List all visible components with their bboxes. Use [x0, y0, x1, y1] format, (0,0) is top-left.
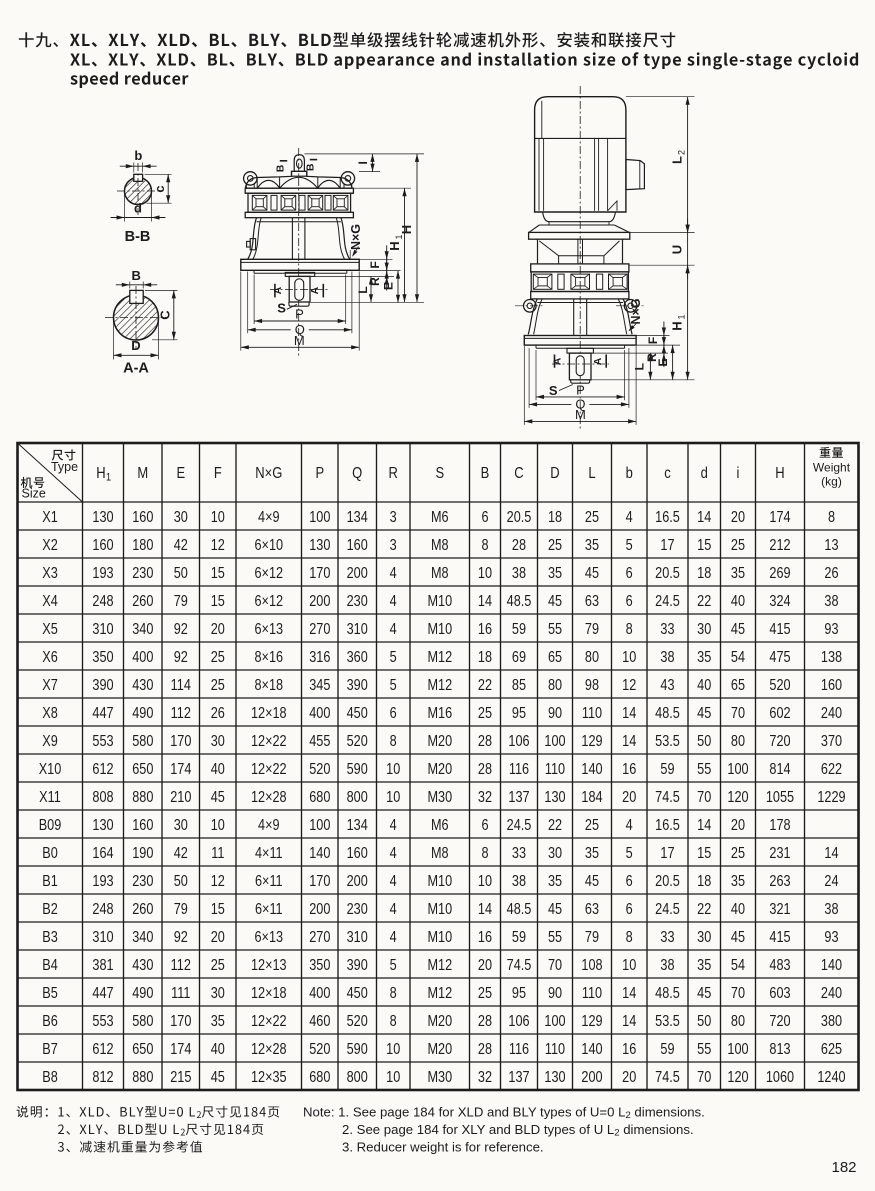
svg-text:270: 270 — [309, 620, 330, 637]
svg-text:63: 63 — [585, 900, 599, 917]
svg-text:190: 190 — [132, 844, 153, 861]
svg-text:48.5: 48.5 — [507, 592, 532, 609]
svg-text:4×9: 4×9 — [258, 508, 280, 525]
svg-text:N×G: N×G — [349, 224, 363, 250]
svg-text:35: 35 — [211, 1012, 225, 1029]
svg-text:520: 520 — [769, 676, 790, 693]
svg-text:4: 4 — [390, 816, 397, 833]
svg-text:35: 35 — [731, 872, 745, 889]
svg-text:12×28: 12×28 — [251, 788, 287, 805]
svg-text:15: 15 — [211, 564, 225, 581]
svg-text:18: 18 — [478, 648, 492, 665]
svg-text:310: 310 — [92, 620, 113, 637]
svg-text:30: 30 — [697, 928, 711, 945]
svg-text:B1: B1 — [42, 872, 58, 889]
svg-text:b: b — [626, 465, 633, 482]
svg-text:140: 140 — [821, 956, 842, 973]
svg-text:X4: X4 — [42, 592, 58, 609]
svg-text:720: 720 — [769, 732, 790, 749]
svg-text:612: 612 — [92, 760, 113, 777]
svg-text:Weight: Weight — [813, 461, 851, 475]
svg-text:1: 1 — [106, 472, 111, 484]
svg-text:270: 270 — [309, 928, 330, 945]
svg-text:80: 80 — [731, 1012, 745, 1029]
svg-text:622: 622 — [821, 760, 842, 777]
svg-text:65: 65 — [548, 648, 562, 665]
svg-text:15: 15 — [697, 844, 711, 861]
svg-text:P: P — [315, 465, 324, 482]
svg-text:160: 160 — [92, 536, 113, 553]
svg-text:580: 580 — [132, 1012, 153, 1029]
svg-text:248: 248 — [92, 592, 113, 609]
svg-text:160: 160 — [132, 816, 153, 833]
svg-text:4: 4 — [390, 928, 397, 945]
svg-text:8×18: 8×18 — [255, 676, 284, 693]
svg-text:B2: B2 — [42, 900, 58, 917]
svg-text:100: 100 — [544, 732, 565, 749]
svg-text:15: 15 — [211, 592, 225, 609]
svg-text:455: 455 — [309, 732, 330, 749]
svg-text:55: 55 — [697, 1040, 711, 1057]
svg-text:170: 170 — [309, 872, 330, 889]
svg-text:230: 230 — [347, 900, 368, 917]
svg-text:12×35: 12×35 — [251, 1068, 287, 1085]
svg-text:H: H — [775, 465, 784, 482]
svg-text:74.5: 74.5 — [507, 956, 532, 973]
svg-text:X3: X3 — [42, 564, 58, 581]
svg-text:H: H — [96, 465, 105, 482]
svg-text:L: L — [588, 465, 595, 482]
svg-text:170: 170 — [309, 564, 330, 581]
svg-text:S: S — [549, 383, 558, 398]
svg-text:800: 800 — [347, 788, 368, 805]
svg-text:25: 25 — [211, 648, 225, 665]
svg-text:X2: X2 — [42, 536, 58, 553]
svg-text:N×G: N×G — [629, 298, 643, 324]
svg-text:215: 215 — [170, 1068, 191, 1085]
svg-text:210: 210 — [170, 788, 191, 805]
svg-text:814: 814 — [769, 760, 790, 777]
svg-text:59: 59 — [512, 928, 526, 945]
svg-text:42: 42 — [174, 844, 188, 861]
svg-text:1229: 1229 — [817, 788, 845, 805]
svg-text:M8: M8 — [431, 844, 449, 861]
svg-text:230: 230 — [347, 592, 368, 609]
svg-text:193: 193 — [92, 872, 113, 889]
svg-text:350: 350 — [309, 956, 330, 973]
svg-text:108: 108 — [581, 956, 602, 973]
svg-text:5: 5 — [626, 844, 633, 861]
svg-text:42: 42 — [174, 536, 188, 553]
svg-text:74.5: 74.5 — [655, 1068, 680, 1085]
svg-text:450: 450 — [347, 704, 368, 721]
svg-text:8: 8 — [626, 620, 633, 637]
svg-text:447: 447 — [92, 704, 113, 721]
svg-text:28: 28 — [478, 1012, 492, 1029]
svg-text:260: 260 — [132, 592, 153, 609]
svg-text:12×28: 12×28 — [251, 1040, 287, 1057]
svg-text:400: 400 — [309, 704, 330, 721]
svg-text:5: 5 — [626, 536, 633, 553]
svg-text:C: C — [157, 310, 172, 320]
svg-text:25: 25 — [731, 844, 745, 861]
svg-text:112: 112 — [171, 956, 191, 973]
svg-text:28: 28 — [478, 760, 492, 777]
svg-text:D: D — [131, 338, 140, 353]
svg-text:79: 79 — [174, 900, 188, 917]
svg-text:B6: B6 — [42, 1012, 58, 1029]
svg-text:35: 35 — [697, 648, 711, 665]
svg-text:4: 4 — [390, 900, 397, 917]
svg-text:16: 16 — [478, 620, 492, 637]
svg-text:c: c — [152, 185, 167, 192]
svg-text:d: d — [134, 201, 142, 216]
svg-text:15: 15 — [211, 900, 225, 917]
svg-text:134: 134 — [347, 816, 368, 833]
svg-text:680: 680 — [309, 788, 330, 805]
svg-text:B5: B5 — [42, 984, 58, 1001]
svg-text:35: 35 — [697, 956, 711, 973]
svg-text:130: 130 — [92, 508, 113, 525]
svg-text:79: 79 — [585, 928, 599, 945]
svg-text:110: 110 — [545, 760, 565, 777]
svg-text:14: 14 — [622, 984, 636, 1001]
svg-text:590: 590 — [347, 1040, 368, 1057]
svg-text:14: 14 — [697, 816, 711, 833]
svg-text:M20: M20 — [427, 1012, 452, 1029]
svg-text:E: E — [176, 465, 185, 482]
svg-text:8: 8 — [390, 1012, 397, 1029]
svg-text:612: 612 — [92, 1040, 113, 1057]
svg-text:110: 110 — [545, 1040, 565, 1057]
svg-text:I: I — [356, 161, 370, 164]
svg-text:M: M — [137, 465, 148, 482]
svg-text:S: S — [435, 465, 444, 482]
svg-text:450: 450 — [347, 984, 368, 1001]
svg-text:4: 4 — [390, 844, 397, 861]
svg-text:M10: M10 — [427, 928, 452, 945]
svg-text:M12: M12 — [427, 984, 452, 1001]
svg-text:79: 79 — [585, 620, 599, 637]
svg-text:40: 40 — [211, 760, 225, 777]
svg-text:50: 50 — [174, 872, 188, 889]
svg-text:12×13: 12×13 — [251, 956, 287, 973]
svg-text:263: 263 — [769, 872, 790, 889]
svg-text:10: 10 — [386, 1068, 400, 1085]
svg-text:12×22: 12×22 — [251, 760, 287, 777]
svg-text:350: 350 — [92, 648, 113, 665]
svg-text:345: 345 — [309, 676, 330, 693]
svg-text:5: 5 — [390, 648, 397, 665]
svg-text:114: 114 — [171, 676, 191, 693]
svg-text:20: 20 — [731, 816, 745, 833]
svg-text:35: 35 — [548, 564, 562, 581]
svg-text:32: 32 — [478, 1068, 492, 1085]
svg-text:A: A — [552, 357, 564, 365]
svg-text:16: 16 — [622, 760, 636, 777]
svg-text:12×22: 12×22 — [251, 1012, 287, 1029]
svg-text:26: 26 — [211, 704, 225, 721]
svg-text:625: 625 — [821, 1040, 842, 1057]
svg-text:38: 38 — [660, 956, 674, 973]
svg-text:180: 180 — [132, 536, 153, 553]
svg-text:Type: Type — [51, 460, 78, 474]
svg-text:35: 35 — [585, 536, 599, 553]
svg-text:129: 129 — [581, 1012, 602, 1029]
svg-text:30: 30 — [697, 620, 711, 637]
svg-text:200: 200 — [581, 1068, 602, 1085]
svg-text:92: 92 — [174, 648, 188, 665]
svg-text:8: 8 — [390, 984, 397, 1001]
svg-text:18: 18 — [697, 872, 711, 889]
svg-text:55: 55 — [548, 620, 562, 637]
svg-text:40: 40 — [211, 1040, 225, 1057]
svg-text:B: B — [304, 163, 316, 171]
svg-text:B-B: B-B — [125, 229, 151, 245]
svg-text:430: 430 — [132, 956, 153, 973]
svg-text:D: D — [550, 465, 559, 482]
svg-text:35: 35 — [548, 872, 562, 889]
svg-text:85: 85 — [512, 676, 526, 693]
svg-text:130: 130 — [544, 788, 565, 805]
svg-text:25: 25 — [548, 536, 562, 553]
svg-text:14: 14 — [697, 508, 711, 525]
svg-text:45: 45 — [211, 1068, 225, 1085]
svg-text:140: 140 — [581, 1040, 602, 1057]
svg-text:Q: Q — [352, 465, 362, 482]
svg-text:20: 20 — [731, 508, 745, 525]
svg-text:93: 93 — [824, 620, 838, 637]
svg-text:160: 160 — [132, 508, 153, 525]
svg-text:54: 54 — [731, 956, 745, 973]
svg-text:63: 63 — [585, 592, 599, 609]
svg-text:12: 12 — [211, 536, 225, 553]
svg-text:324: 324 — [769, 592, 790, 609]
svg-text:880: 880 — [132, 1068, 153, 1085]
svg-text:6×12: 6×12 — [255, 564, 284, 581]
svg-text:50: 50 — [697, 732, 711, 749]
svg-text:6: 6 — [481, 508, 488, 525]
svg-text:B0: B0 — [42, 844, 58, 861]
svg-text:N×G: N×G — [255, 465, 282, 482]
svg-text:3. Reducer weight is for refer: 3. Reducer weight is for reference. — [342, 1140, 544, 1155]
svg-text:25: 25 — [585, 508, 599, 525]
svg-text:20: 20 — [622, 788, 636, 805]
svg-text:134: 134 — [347, 508, 368, 525]
svg-text:447: 447 — [92, 984, 113, 1001]
svg-text:M30: M30 — [427, 788, 452, 805]
svg-text:182: 182 — [831, 1159, 856, 1176]
svg-text:380: 380 — [821, 1012, 842, 1029]
svg-text:M8: M8 — [431, 564, 449, 581]
svg-text:130: 130 — [92, 816, 113, 833]
svg-text:553: 553 — [92, 1012, 113, 1029]
svg-text:6×11: 6×11 — [255, 872, 283, 889]
svg-text:Note: 1. See page 184 for XLD: Note: 1. See page 184 for XLD and BLY ty… — [303, 1105, 705, 1122]
svg-text:70: 70 — [548, 956, 562, 973]
svg-text:650: 650 — [132, 1040, 153, 1057]
svg-text:M10: M10 — [427, 620, 452, 637]
svg-text:22: 22 — [548, 816, 562, 833]
svg-text:137: 137 — [508, 1068, 529, 1085]
svg-text:25: 25 — [585, 816, 599, 833]
svg-text:1: 1 — [677, 314, 687, 319]
svg-text:381: 381 — [92, 956, 113, 973]
svg-text:20: 20 — [211, 620, 225, 637]
svg-text:11: 11 — [211, 844, 224, 861]
svg-text:25: 25 — [731, 536, 745, 553]
svg-text:R: R — [389, 465, 398, 482]
svg-text:M20: M20 — [427, 760, 452, 777]
svg-text:45: 45 — [548, 900, 562, 917]
svg-text:4: 4 — [626, 816, 633, 833]
svg-text:L: L — [670, 156, 685, 164]
svg-text:1060: 1060 — [766, 1068, 794, 1085]
svg-text:M6: M6 — [431, 816, 449, 833]
svg-text:70: 70 — [731, 704, 745, 721]
svg-text:70: 70 — [731, 984, 745, 1001]
svg-text:390: 390 — [92, 676, 113, 693]
svg-text:160: 160 — [347, 844, 368, 861]
svg-text:50: 50 — [697, 1012, 711, 1029]
svg-text:1: 1 — [394, 234, 404, 239]
svg-text:3: 3 — [390, 508, 397, 525]
svg-text:2: 2 — [677, 150, 687, 155]
svg-text:106: 106 — [508, 1012, 529, 1029]
svg-text:193: 193 — [92, 564, 113, 581]
svg-text:70: 70 — [697, 788, 711, 805]
svg-text:10: 10 — [622, 956, 636, 973]
svg-text:M20: M20 — [427, 732, 452, 749]
svg-text:5: 5 — [390, 956, 397, 973]
svg-text:M6: M6 — [431, 508, 449, 525]
svg-text:24: 24 — [824, 872, 838, 889]
svg-text:X9: X9 — [42, 732, 58, 749]
svg-text:L: L — [633, 363, 647, 370]
svg-text:310: 310 — [92, 928, 113, 945]
svg-text:65: 65 — [731, 676, 745, 693]
svg-text:B7: B7 — [42, 1040, 58, 1057]
svg-text:H: H — [670, 321, 685, 330]
svg-text:483: 483 — [769, 956, 790, 973]
svg-text:8: 8 — [481, 844, 488, 861]
svg-text:M: M — [575, 407, 586, 422]
svg-text:B: B — [274, 164, 286, 172]
svg-text:603: 603 — [769, 984, 790, 1001]
svg-text:30: 30 — [174, 816, 188, 833]
svg-text:16: 16 — [478, 928, 492, 945]
svg-text:12: 12 — [622, 676, 636, 693]
svg-text:A-A: A-A — [123, 361, 149, 377]
svg-text:92: 92 — [174, 928, 188, 945]
svg-text:45: 45 — [548, 592, 562, 609]
svg-text:70: 70 — [697, 1068, 711, 1085]
svg-text:120: 120 — [727, 788, 748, 805]
svg-text:M8: M8 — [431, 536, 449, 553]
svg-text:L: L — [356, 286, 370, 293]
svg-text:231: 231 — [769, 844, 790, 861]
svg-text:415: 415 — [769, 928, 790, 945]
svg-text:95: 95 — [512, 704, 526, 721]
svg-text:20: 20 — [622, 1068, 636, 1085]
svg-text:6: 6 — [626, 592, 633, 609]
svg-text:M16: M16 — [427, 704, 452, 721]
svg-text:200: 200 — [347, 872, 368, 889]
svg-text:310: 310 — [347, 620, 368, 637]
svg-text:160: 160 — [821, 676, 842, 693]
svg-text:8: 8 — [828, 508, 835, 525]
svg-text:33: 33 — [660, 620, 674, 637]
svg-text:808: 808 — [92, 788, 113, 805]
svg-text:4×9: 4×9 — [258, 816, 280, 833]
svg-text:12×22: 12×22 — [251, 732, 287, 749]
svg-text:45: 45 — [211, 788, 225, 805]
svg-text:475: 475 — [769, 648, 790, 665]
svg-text:M12: M12 — [427, 676, 452, 693]
svg-text:106: 106 — [508, 732, 529, 749]
svg-text:520: 520 — [309, 1040, 330, 1057]
svg-text:553: 553 — [92, 732, 113, 749]
svg-text:B4: B4 — [42, 956, 58, 973]
svg-text:53.5: 53.5 — [655, 1012, 680, 1029]
svg-text:12×18: 12×18 — [251, 984, 287, 1001]
svg-text:370: 370 — [821, 732, 842, 749]
svg-text:8: 8 — [481, 536, 488, 553]
svg-text:160: 160 — [347, 536, 368, 553]
svg-text:B8: B8 — [42, 1068, 58, 1085]
svg-text:33: 33 — [660, 928, 674, 945]
svg-text:98: 98 — [585, 676, 599, 693]
svg-text:812: 812 — [92, 1068, 113, 1085]
svg-text:38: 38 — [824, 900, 838, 917]
svg-text:110: 110 — [582, 984, 602, 1001]
svg-text:28: 28 — [478, 1040, 492, 1057]
svg-text:B: B — [481, 465, 490, 482]
svg-text:M12: M12 — [427, 648, 452, 665]
svg-text:45: 45 — [585, 564, 599, 581]
svg-text:174: 174 — [170, 760, 191, 777]
svg-text:10: 10 — [478, 872, 492, 889]
svg-text:17: 17 — [660, 844, 674, 861]
svg-text:40: 40 — [731, 900, 745, 917]
svg-text:6: 6 — [390, 704, 397, 721]
svg-text:12: 12 — [211, 872, 225, 889]
svg-text:38: 38 — [512, 564, 526, 581]
svg-text:38: 38 — [512, 872, 526, 889]
svg-text:520: 520 — [347, 732, 368, 749]
svg-text:170: 170 — [170, 732, 191, 749]
svg-text:38: 38 — [824, 592, 838, 609]
svg-text:10: 10 — [478, 564, 492, 581]
svg-text:X7: X7 — [42, 676, 58, 693]
svg-text:d: d — [701, 465, 708, 482]
svg-text:390: 390 — [347, 676, 368, 693]
svg-text:16: 16 — [622, 1040, 636, 1057]
svg-text:20.5: 20.5 — [655, 564, 680, 581]
svg-text:95: 95 — [512, 984, 526, 1001]
svg-text:520: 520 — [347, 1012, 368, 1029]
svg-text:32: 32 — [478, 788, 492, 805]
svg-text:25: 25 — [211, 676, 225, 693]
svg-text:415: 415 — [769, 620, 790, 637]
svg-text:M30: M30 — [427, 1068, 452, 1085]
svg-text:110: 110 — [582, 704, 602, 721]
svg-text:12×18: 12×18 — [251, 704, 287, 721]
svg-text:B: B — [132, 268, 141, 283]
svg-text:602: 602 — [769, 704, 790, 721]
svg-text:24.5: 24.5 — [655, 592, 680, 609]
svg-text:20.5: 20.5 — [655, 872, 680, 889]
